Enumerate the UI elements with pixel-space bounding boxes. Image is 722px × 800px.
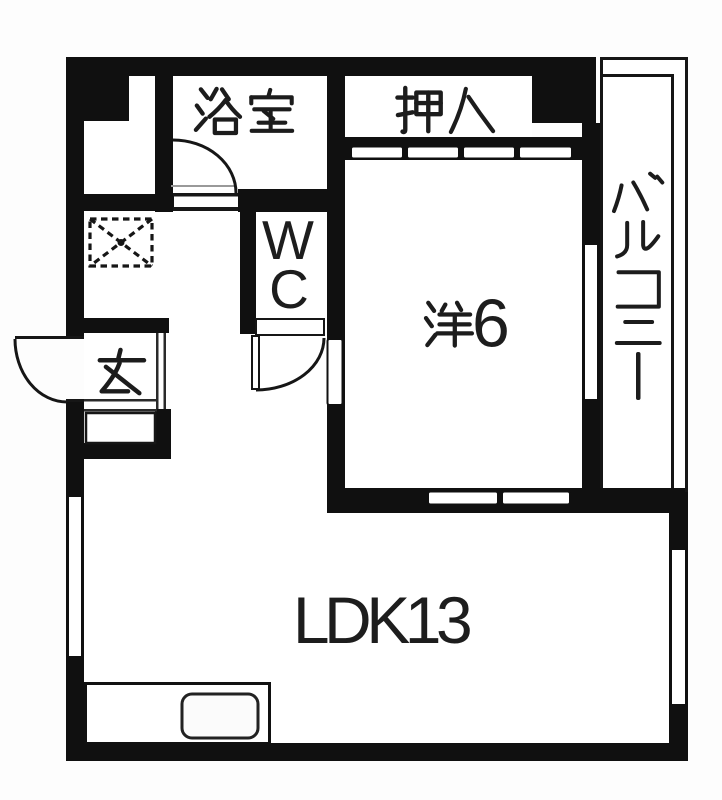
svg-text:6: 6 (472, 286, 510, 362)
svg-text:LDK13: LDK13 (293, 583, 470, 657)
svg-text:C: C (269, 258, 309, 320)
